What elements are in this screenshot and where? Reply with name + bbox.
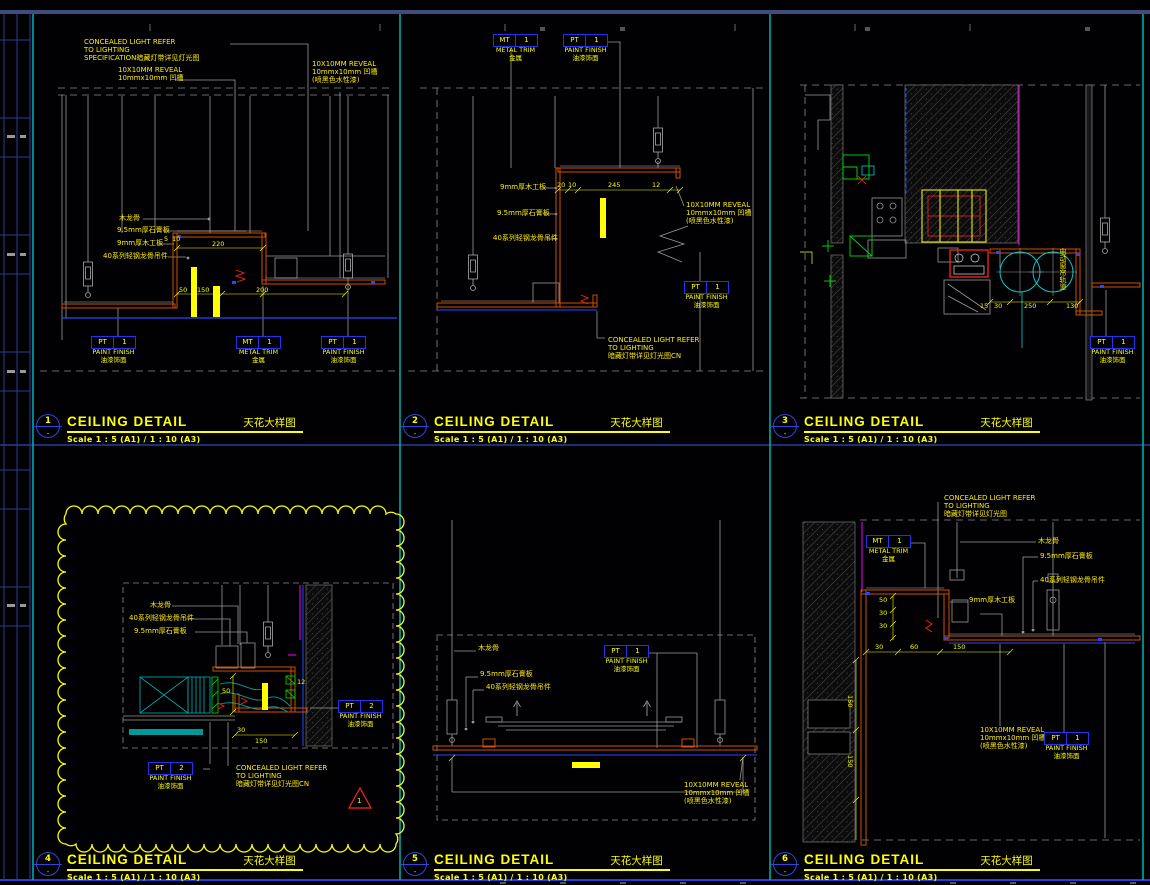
panel4-detail-linework [58, 506, 404, 852]
dimension-label: 150 [197, 287, 209, 294]
material-label: 40系列轻钢龙骨吊件 [103, 252, 168, 260]
annotation-reveal: 10X10MM REVEAL10mmx10mm 凹槽(喷黑色水性漆) [312, 60, 377, 84]
material-tag-mt: MT1 METAL TRIM金属 [236, 336, 281, 364]
dimension-label: 150 [255, 738, 267, 745]
detail-number-bubble: 1- [36, 414, 60, 438]
curtain-track-label: 电动窗帘轨道 [1059, 248, 1067, 290]
detail-title-cn: 天花大样图 [243, 415, 296, 430]
dimension-label: 10 [568, 182, 576, 189]
dimension-label: 30 [879, 610, 887, 617]
title-block-2: 2- CEILING DETAIL天花大样图 Scale 1 : 5 (A1) … [403, 414, 670, 444]
material-label: 木龙骨 [478, 644, 499, 652]
detail-number-bubble: 2- [403, 414, 427, 438]
material-label: 40系列轻钢龙骨吊件 [486, 683, 551, 691]
detail-number-bubble: 4- [36, 852, 60, 876]
dimension-label: 60 [910, 644, 918, 651]
dimension-label: 20 [557, 182, 565, 189]
dimension-label: 200 [256, 287, 268, 294]
material-tag-mt: MT1 METAL TRIM金属 [866, 535, 911, 563]
material-tag-pt: PT1 PAINT FINISH油漆饰面 [1090, 336, 1135, 364]
annotation-reveal: 10X10MM REVEAL10mmx10mm 凹槽(喷黑色水性漆) [980, 726, 1045, 750]
material-tag-pt: PT1 PAINT FINISH油漆饰面 [321, 336, 366, 364]
material-label: 9.5mm厚石膏板 [480, 670, 533, 678]
material-label: 木龙骨 [1038, 537, 1059, 545]
dimension-label: 250 [1024, 303, 1036, 310]
dimension-label: 50 [179, 287, 187, 294]
title-block-5: 5- CEILING DETAIL天花大样图 Scale 1 : 5 (A1) … [403, 852, 670, 882]
dimension-label: 30 [875, 644, 883, 651]
material-tag-pt: PT1 PAINT FINISH油漆饰面 [91, 336, 136, 364]
material-label: 9.5mm厚石膏板 [497, 209, 550, 217]
title-block-1: 1- CEILING DETAIL天花大样图 Scale 1 : 5 (A1) … [36, 414, 303, 444]
material-label: 9.5mm厚石膏板 [117, 226, 170, 234]
ceiling-profile-5 [433, 739, 757, 750]
material-tag-pt: PT1 PAINT FINISH油漆饰面 [563, 34, 608, 62]
dimension-label: 30 [879, 623, 887, 630]
material-tag-pt: PT2 PAINT FINISH油漆饰面 [338, 700, 383, 728]
annotation-reveal: 10X10MM REVEAL10mmx10mm 凹槽(喷黑色水性漆) [684, 781, 749, 805]
annotation-concealed-light: CONCEALED LIGHT REFERTO LIGHTINGSPECIFIC… [84, 38, 199, 62]
title-block-4: 4- CEILING DETAIL天花大样图 Scale 1 : 5 (A1) … [36, 852, 303, 882]
detail-number-bubble: 3- [773, 414, 797, 438]
material-tag-mt: MT1 METAL TRIM金属 [493, 34, 538, 62]
annotation-reveal: 10X10MM REVEAL10mmx10mm 凹槽(喷黑色水性漆) [686, 201, 751, 225]
revision-number: 1 [357, 797, 361, 805]
detail-number-bubble: 5- [403, 852, 427, 876]
material-label: 40系列轻钢龙骨吊件 [493, 234, 558, 242]
annotation-concealed-light: CONCEALED LIGHT REFERTO LIGHTING暗藏灯带详见灯光… [236, 764, 327, 788]
material-label: 9.5mm厚石膏板 [1040, 552, 1093, 560]
ceiling-profile-6 [861, 590, 1140, 845]
detail-title: CEILING DETAIL [67, 414, 187, 429]
dimension-label: 150 [953, 644, 965, 651]
material-tag-pt: PT2 PAINT FINISH油漆饰面 [148, 762, 193, 790]
dimension-label: 30 [994, 303, 1002, 310]
title-block-6: 6- CEILING DETAIL天花大样图 Scale 1 : 5 (A1) … [773, 852, 1040, 882]
material-label: 9mm厚木工板 [969, 596, 1015, 604]
dimension-label: 150 [846, 755, 853, 767]
dimension-label: 10 [172, 236, 180, 243]
material-label: 木龙骨 [119, 214, 140, 222]
dimension-label: 30 [237, 727, 245, 734]
title-block-3: 3- CEILING DETAIL天花大样图 Scale 1 : 5 (A1) … [773, 414, 1040, 444]
material-label: 9.5mm厚石膏板 [134, 627, 187, 635]
detail-number-bubble: 6- [773, 852, 797, 876]
dimension-label: 150 [846, 695, 853, 707]
material-tag-pt: PT1 PAINT FINISH油漆饰面 [1044, 732, 1089, 760]
dimension-label: 12 [297, 679, 305, 686]
annotation-concealed-light: CONCEALED LIGHT REFERTO LIGHTING暗藏灯带详见灯光… [608, 336, 699, 360]
dimension-label: 50 [879, 597, 887, 604]
material-label: 9mm厚木工板 [117, 239, 163, 247]
dimension-label: 5 [164, 236, 168, 243]
material-tag-pt: PT1 PAINT FINISH油漆饰面 [604, 645, 649, 673]
dimension-label: 15 [980, 303, 988, 310]
dimension-label: 220 [212, 241, 224, 248]
annotation-concealed-light: CONCEALED LIGHT REFERTO LIGHTING暗藏灯带详见灯光… [944, 494, 1035, 518]
cad-drawing-sheet: CONCEALED LIGHT REFERTO LIGHTINGSPECIFIC… [0, 0, 1150, 885]
material-label: 木龙骨 [150, 601, 171, 609]
revision-cloud [58, 506, 404, 852]
dimension-label: 12 [652, 182, 660, 189]
dimension-label: 130 [1066, 303, 1078, 310]
material-label: 40系列轻钢龙骨吊件 [129, 614, 194, 622]
material-label: 9mm厚木工板 [500, 183, 546, 191]
material-tag-pt: PT1 PAINT FINISH油漆饰面 [684, 281, 729, 309]
panel3-detail-linework [800, 85, 1140, 400]
dimension-label: 50 [222, 688, 230, 695]
material-label: 40系列轻钢龙骨吊件 [1040, 576, 1105, 584]
panel1-detail-linework [40, 44, 397, 371]
detail-scale: Scale 1 : 5 (A1) / 1 : 10 (A3) [67, 435, 303, 444]
annotation-reveal: 10X10MM REVEAL10mmx10mm 凹槽 [118, 66, 183, 82]
dimension-label: 245 [608, 182, 620, 189]
